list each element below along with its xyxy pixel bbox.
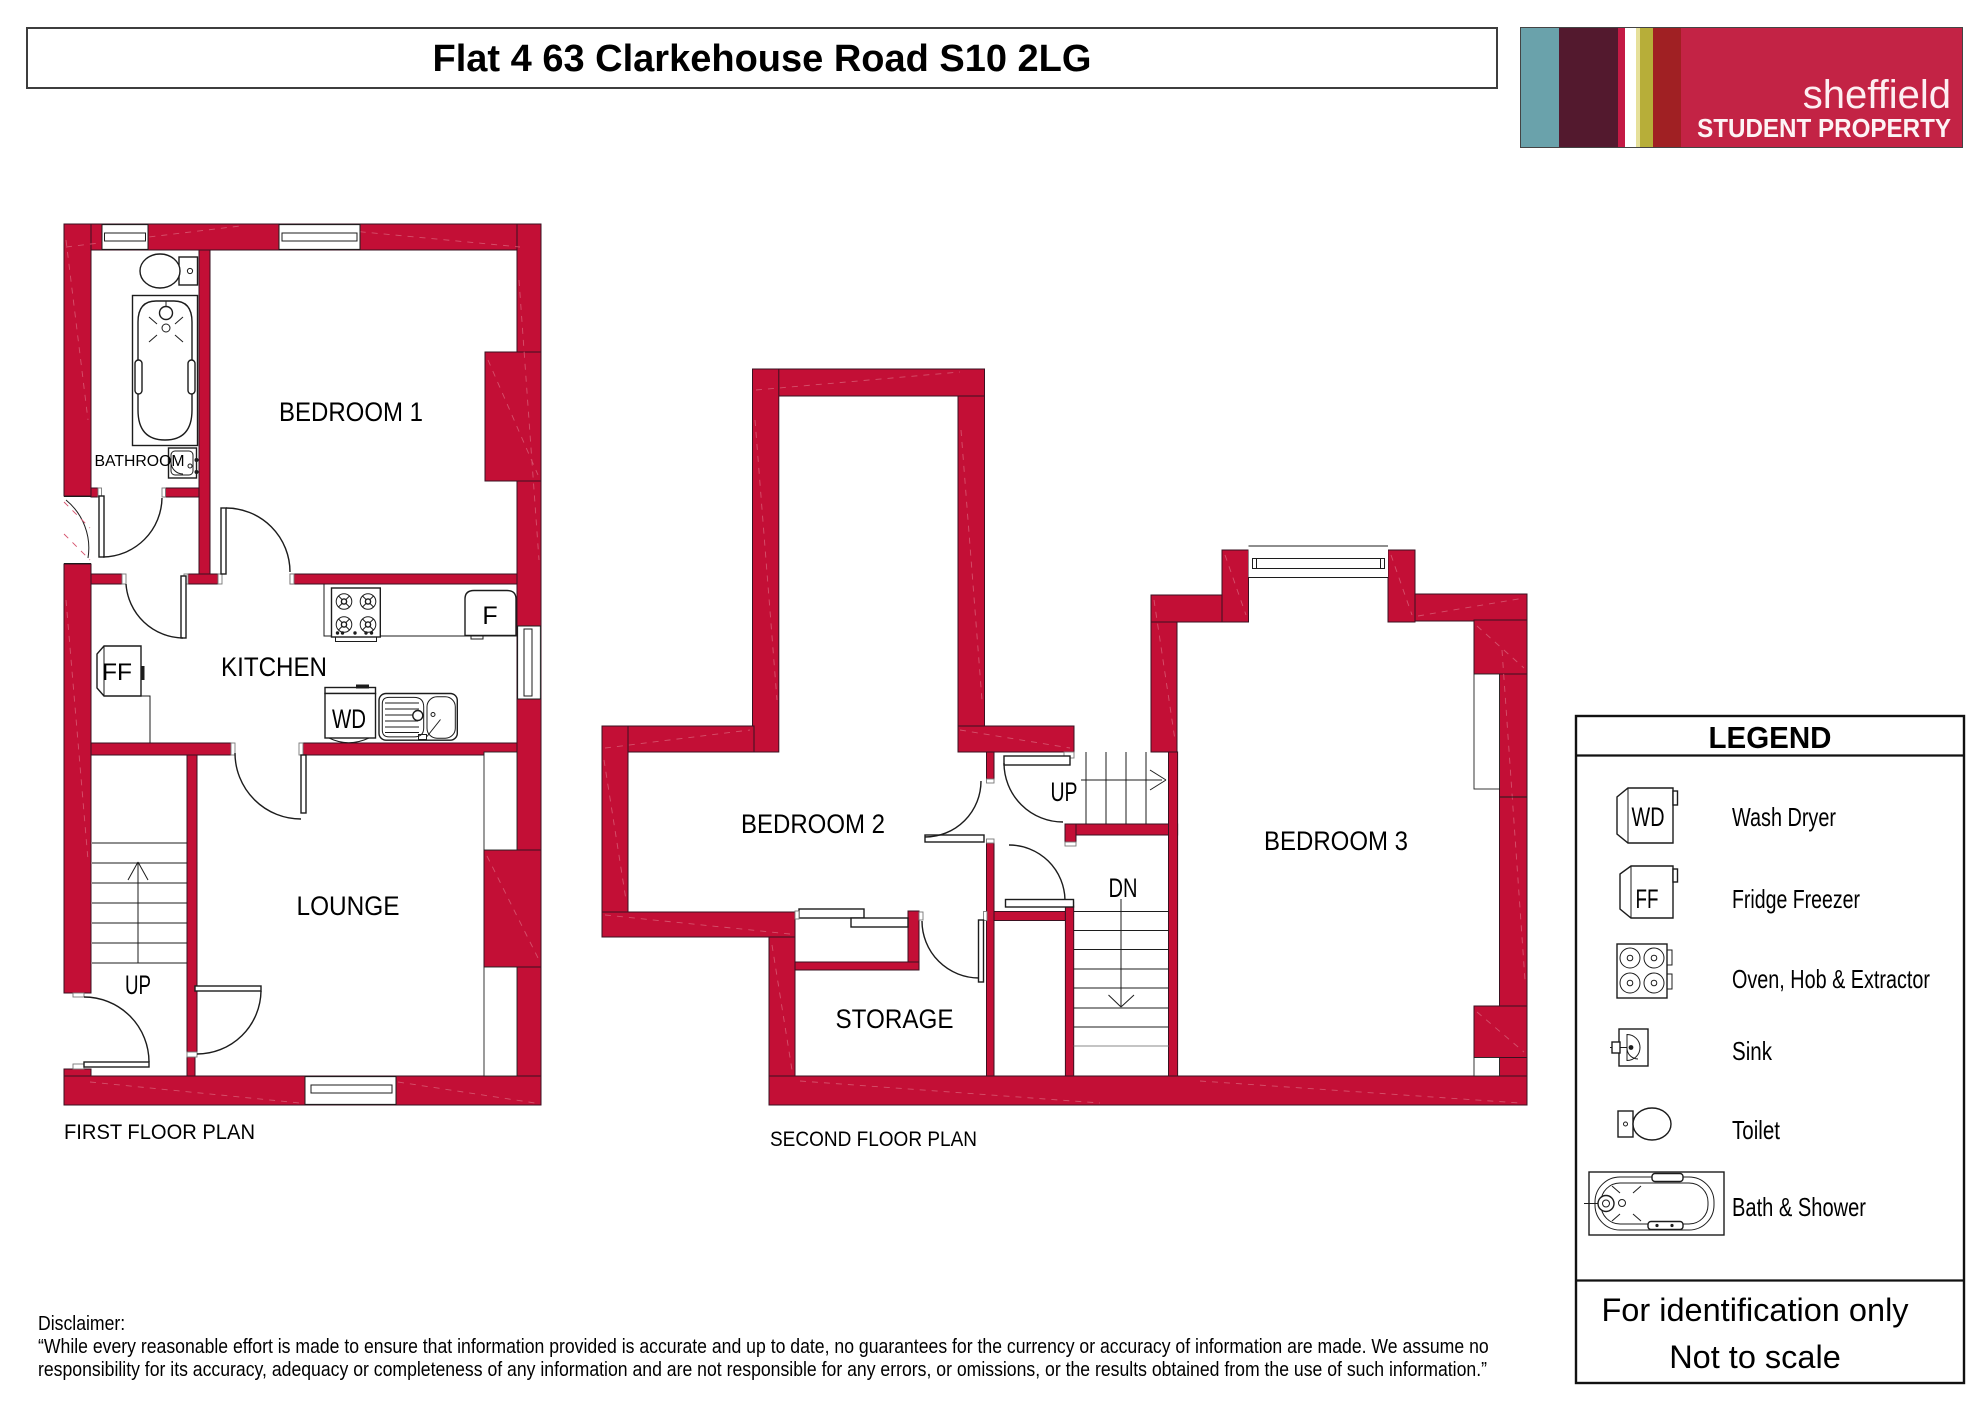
svg-text:WD: WD — [1632, 802, 1665, 832]
svg-text:Wash Dryer: Wash Dryer — [1732, 802, 1836, 832]
svg-text:Toilet: Toilet — [1732, 1115, 1781, 1145]
svg-text:Sink: Sink — [1732, 1036, 1773, 1066]
svg-text:BEDROOM 3: BEDROOM 3 — [1264, 826, 1408, 856]
svg-text:F: F — [482, 602, 497, 630]
svg-text:BEDROOM 2: BEDROOM 2 — [741, 809, 885, 839]
svg-text:LEGEND: LEGEND — [1709, 720, 1832, 755]
svg-text:BEDROOM 1: BEDROOM 1 — [279, 397, 423, 427]
svg-text:BATHROOM: BATHROOM — [95, 453, 185, 470]
svg-text:Bath & Shower: Bath & Shower — [1732, 1192, 1866, 1222]
svg-text:WD: WD — [332, 704, 366, 734]
svg-text:FF: FF — [1636, 884, 1659, 914]
svg-text:SECOND FLOOR PLAN: SECOND FLOOR PLAN — [770, 1127, 977, 1151]
svg-text:Fridge Freezer: Fridge Freezer — [1732, 884, 1860, 914]
svg-text:DN: DN — [1109, 873, 1138, 903]
svg-text:STORAGE: STORAGE — [836, 1004, 954, 1034]
svg-text:For identification only: For identification only — [1601, 1292, 1909, 1328]
svg-text:UP: UP — [125, 970, 151, 1000]
svg-text:UP: UP — [1051, 777, 1078, 807]
svg-text:Not to scale: Not to scale — [1669, 1339, 1841, 1375]
svg-text:Oven, Hob & Extractor: Oven, Hob & Extractor — [1732, 964, 1930, 994]
svg-text:FIRST FLOOR PLAN: FIRST FLOOR PLAN — [64, 1120, 255, 1144]
svg-text:FF: FF — [102, 659, 132, 686]
svg-text:LOUNGE: LOUNGE — [297, 891, 400, 921]
svg-text:KITCHEN: KITCHEN — [221, 652, 327, 682]
